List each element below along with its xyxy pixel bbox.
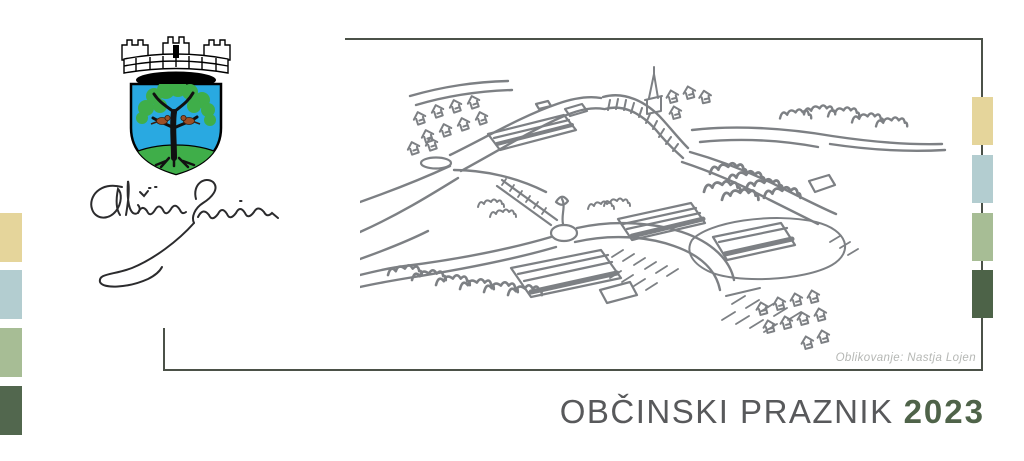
sevnica-coat-of-arms [116,36,236,178]
sketch-bridge [603,95,688,158]
frame-top-line [345,38,983,40]
event-title: OBČINSKI PRAZNIK2023 [560,394,985,430]
palette-swatch-right-light-blue [972,155,993,203]
event-title-year: 2023 [904,393,985,430]
palette-swatch-left-light-blue [0,270,22,319]
frame-bottom-line [163,369,983,371]
palette-swatch-right-dark-green [972,270,993,318]
designer-credit: Oblikovanje: Nastja Lojen [836,352,976,364]
palette-swatch-right-tan [972,97,993,145]
obcina-sevnica-signature [80,175,290,320]
crest-mural-crown [122,37,230,73]
palette-swatch-left-dark-green [0,386,22,435]
town-sketch-illustration [360,52,966,364]
palette-swatch-left-tan [0,213,22,262]
palette-swatch-right-sage [972,213,993,261]
frame-right-line [981,38,983,371]
frame-left-stub [163,328,165,371]
banner-canvas: Oblikovanje: Nastja Lojen OBČINSKI PRAZN… [0,0,1024,461]
event-title-label: OBČINSKI PRAZNIK [560,393,894,430]
sketch-church [645,67,662,114]
crest-shield [131,79,221,176]
palette-swatch-left-sage [0,328,22,377]
